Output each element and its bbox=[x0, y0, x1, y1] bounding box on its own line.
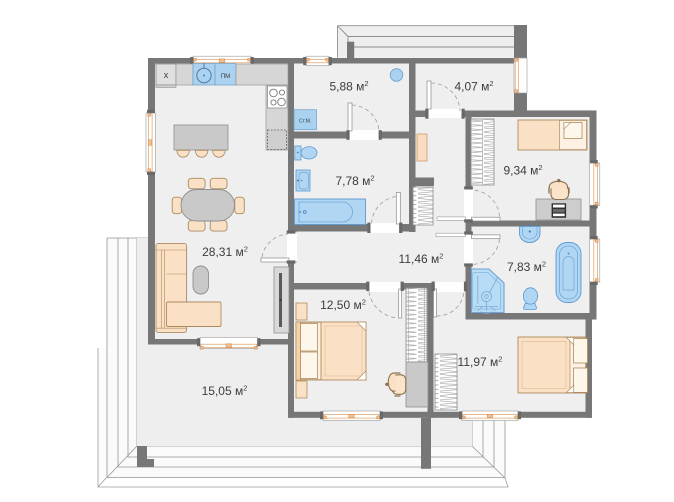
svg-text:4,07 м2: 4,07 м2 bbox=[454, 79, 493, 94]
svg-text:9,34 м2: 9,34 м2 bbox=[503, 163, 542, 178]
svg-text:5,88 м2: 5,88 м2 bbox=[329, 79, 368, 94]
svg-text:Ст.М.: Ст.М. bbox=[299, 118, 311, 124]
svg-text:x: x bbox=[164, 70, 169, 80]
svg-text:15,05 м2: 15,05 м2 bbox=[202, 384, 248, 399]
svg-text:11,97 м2: 11,97 м2 bbox=[458, 355, 503, 370]
svg-text:ПМ: ПМ bbox=[221, 73, 231, 80]
svg-text:7,78 м2: 7,78 м2 bbox=[335, 174, 374, 189]
svg-text:7,83 м2: 7,83 м2 bbox=[507, 260, 546, 275]
svg-text:12,50 м2: 12,50 м2 bbox=[320, 298, 366, 313]
svg-text:28,31 м2: 28,31 м2 bbox=[202, 245, 248, 260]
svg-text:11,46 м2: 11,46 м2 bbox=[399, 252, 444, 267]
